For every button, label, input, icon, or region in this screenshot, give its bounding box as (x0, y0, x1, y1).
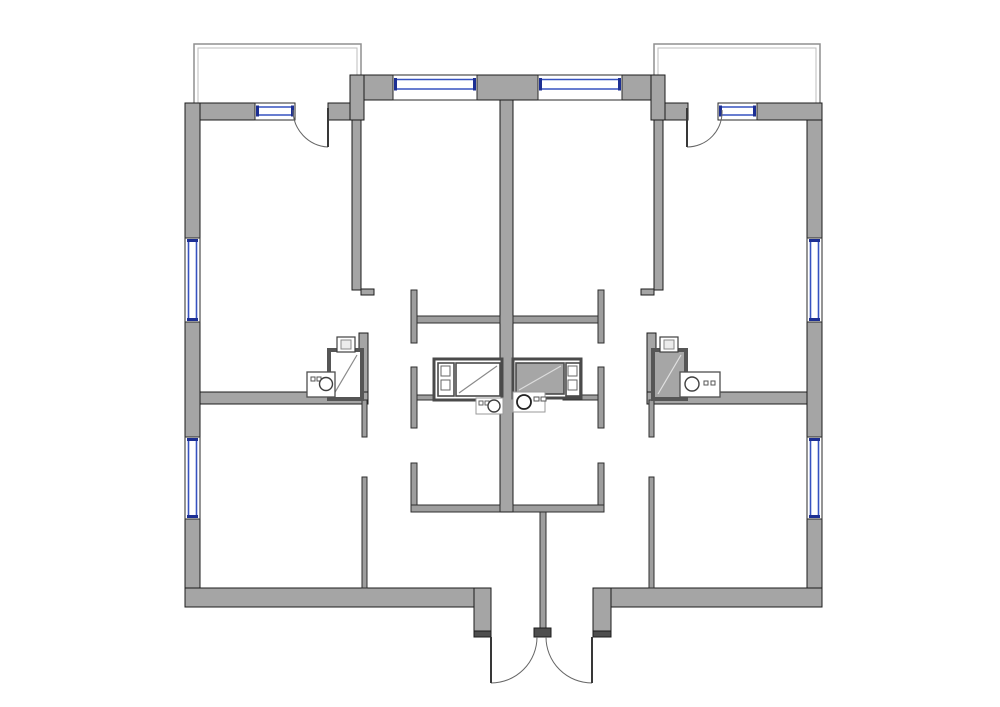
exterior-wall-topleft-b (328, 103, 350, 120)
kitchen-wall-right-bottom (513, 505, 604, 512)
kitchen-sink-right (541, 397, 546, 401)
sink-right-corner (704, 381, 708, 385)
exterior-wall-bottom-left (185, 588, 474, 607)
window-left-upper-tick (187, 239, 198, 242)
exterior-wall-bottom-right (611, 588, 822, 607)
exterior-wall-topright-b (757, 103, 822, 120)
window-top-right-tick (539, 78, 542, 91)
window-right-upper-tick (809, 239, 820, 242)
hall-wall-right-lower (649, 477, 654, 588)
exterior-wall-step-right (651, 75, 665, 120)
entry-divider-wall (540, 512, 546, 628)
kitchen-wall-left-cap (411, 290, 417, 343)
entry-jamb-right (593, 588, 611, 631)
toilet-right (664, 340, 674, 349)
window-left-lower-tick (187, 438, 198, 441)
window-right-upper-tick (809, 318, 820, 321)
toilet-left (341, 340, 351, 349)
window-left-lower-tick (187, 515, 198, 518)
window-right-upper (807, 238, 822, 322)
bedroom-wall-left (352, 120, 361, 290)
entry-jamb-cap-left (474, 631, 491, 637)
exterior-wall-pier-center (477, 75, 538, 100)
bath-unit-right-center (568, 366, 577, 376)
exterior-wall-topright-a (665, 103, 688, 120)
window-top-right-tick (618, 78, 621, 91)
window-left-lower (185, 437, 200, 519)
kitchen-sink-left (479, 401, 483, 405)
bath-unit-left-center (441, 380, 450, 390)
kitchen-wall-right-cap (598, 290, 604, 343)
window-balcony-right-tick (753, 106, 756, 117)
window-balcony-left-tick (256, 106, 259, 117)
exterior-wall-topleft-a (200, 103, 255, 120)
window-top-left-tick (394, 78, 397, 91)
kitchen-wall-right-mid (598, 367, 604, 428)
kitchen-wall-left-bottom (411, 505, 500, 512)
sink-left-corner (311, 377, 315, 381)
hall-wall-left-lower (362, 477, 367, 588)
window-left-upper-tick (187, 318, 198, 321)
exterior-wall-right-middle (807, 322, 822, 437)
exterior-wall-left-upper (185, 103, 200, 238)
entry-jamb-left (474, 588, 491, 631)
floor-plan (0, 0, 1000, 707)
floor-plan-canvas (0, 0, 1000, 707)
kitchen-wall-right-top (513, 316, 598, 323)
kitchen-sink-right (534, 397, 539, 401)
kitchen-sink-right (517, 395, 531, 409)
sink-left-corner (320, 378, 333, 391)
exterior-wall-pier-right (622, 75, 651, 100)
exterior-wall-right-upper (807, 120, 822, 238)
kitchen-sink-left (488, 400, 500, 412)
window-right-lower-tick (809, 438, 820, 441)
window-left-upper (185, 238, 200, 322)
bedroom-wall-right (654, 120, 663, 290)
kitchen-wall-left-mid (411, 367, 417, 428)
sink-right-corner (685, 377, 699, 391)
bedroom-wall-right-foot (641, 289, 654, 295)
window-balcony-right (718, 103, 757, 120)
entry-jamb-cap-right (593, 631, 611, 637)
window-balcony-left (255, 103, 295, 120)
bath-unit-right-center (568, 380, 577, 390)
exterior-wall-left-middle (185, 322, 200, 437)
kitchen-wall-left-top (417, 316, 500, 323)
exterior-wall-pier-left (364, 75, 393, 100)
window-top-left-tick (473, 78, 476, 91)
bath-unit-left-center (441, 366, 450, 376)
bedroom-wall-left-foot (361, 289, 374, 295)
hall-wall-left-upper (362, 400, 367, 437)
entry-center-cap (534, 628, 551, 637)
sink-right-corner (711, 381, 715, 385)
window-right-lower (807, 437, 822, 519)
exterior-wall-step-left (350, 75, 364, 120)
hall-wall-right-upper (649, 400, 654, 437)
party-wall-center (500, 100, 513, 512)
window-right-lower-tick (809, 515, 820, 518)
